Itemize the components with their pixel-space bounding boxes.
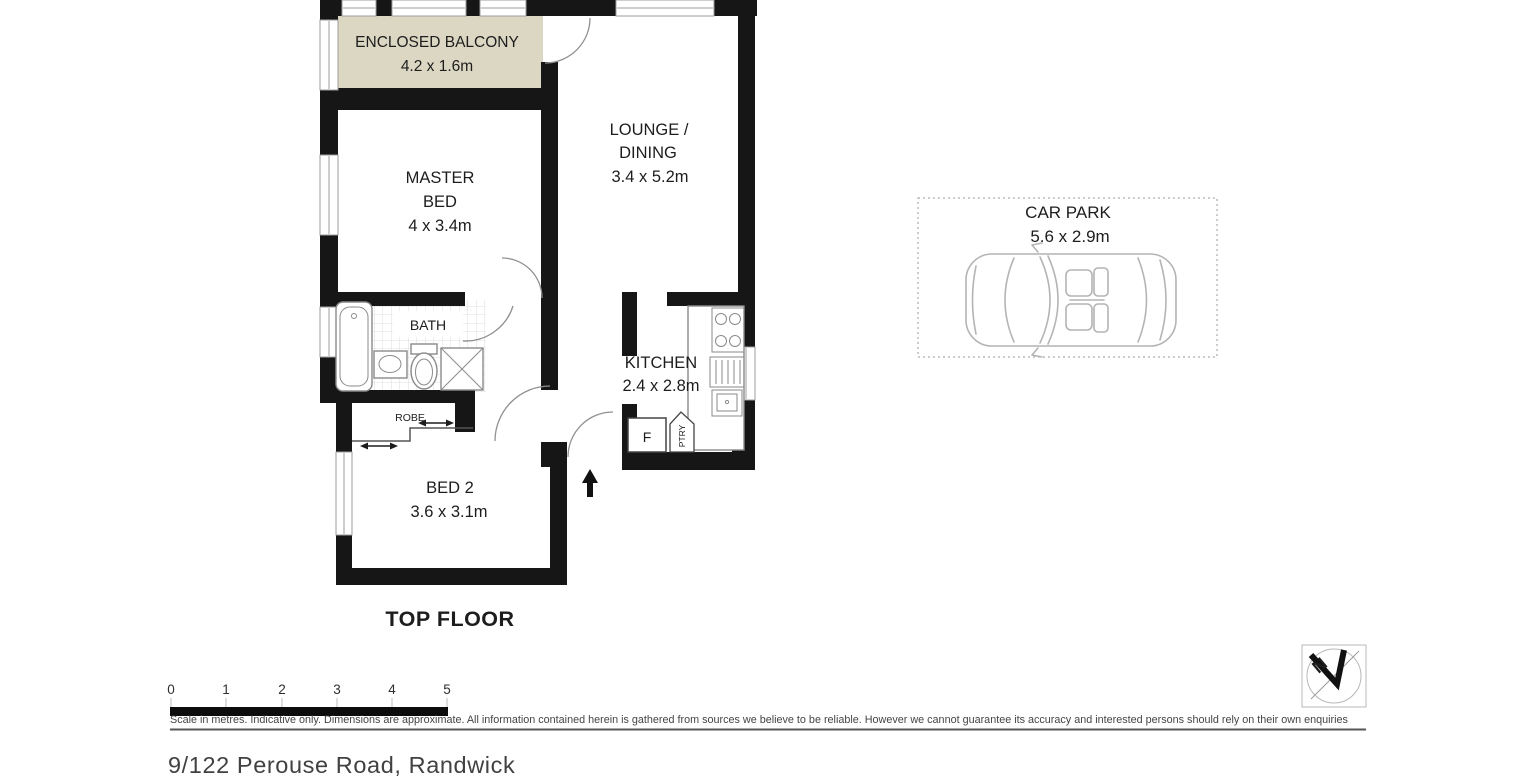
scale-tick-5: 5: [443, 682, 451, 697]
scale-bar: 0 1 2 3 4 5: [167, 682, 451, 716]
car-park-title: CAR PARK: [1025, 203, 1111, 222]
vanity-sink-icon: [374, 351, 407, 378]
bed2-door-arc: [495, 386, 550, 441]
kitchen-name: KITCHEN: [625, 354, 697, 372]
car-park: CAR PARK 5.6 x 2.9m: [918, 198, 1217, 357]
shower-icon: [441, 348, 483, 390]
scale-tick-3: 3: [333, 682, 341, 697]
master-bed-dims: 4 x 3.4m: [408, 217, 471, 235]
kitchen-dims: 2.4 x 2.8m: [622, 377, 699, 395]
level-label: TOP FLOOR: [385, 607, 514, 631]
disclaimer-text: Scale in metres. Indicative only. Dimens…: [170, 714, 1348, 726]
master-door-arc: [502, 258, 542, 298]
lounge-name-1: LOUNGE /: [610, 121, 689, 139]
scale-tick-2: 2: [278, 682, 286, 697]
pantry-label: PTRY: [677, 424, 687, 447]
toilet-icon: [411, 344, 437, 389]
balcony-floor: [338, 16, 543, 88]
master-bed-name-1: MASTER: [406, 169, 475, 187]
balcony-name: ENCLOSED BALCONY: [355, 34, 519, 51]
floor-plan-page: CAR PARK 5.6 x 2.9m ENCLOSED BALCONY 4.2…: [0, 0, 1534, 780]
balcony-dims: 4.2 x 1.6m: [401, 58, 473, 75]
lounge-name-2: DINING: [619, 144, 677, 162]
entry-arrow-icon: [582, 469, 598, 497]
balcony-door-arc: [545, 18, 590, 63]
bathtub-icon: [336, 302, 372, 391]
bed2-dims: 3.6 x 3.1m: [410, 503, 487, 521]
lounge-dims: 3.4 x 5.2m: [611, 168, 688, 186]
scale-tick-0: 0: [167, 682, 175, 697]
scale-tick-1: 1: [222, 682, 230, 697]
scale-tick-lines: [171, 698, 447, 707]
car-park-dims: 5.6 x 2.9m: [1030, 227, 1109, 246]
master-bed-name-2: BED: [423, 193, 457, 211]
address-text: 9/122 Perouse Road, Randwick: [168, 752, 515, 778]
robe-fixture: [352, 420, 473, 450]
robe-name: ROBE: [395, 412, 425, 424]
entry-door-arc: [568, 412, 613, 457]
car-icon: [966, 243, 1176, 357]
fridge-label: F: [643, 429, 652, 445]
bed2-name: BED 2: [426, 479, 474, 497]
sliding-door-arrow-icon: [360, 443, 398, 450]
floor-plan-svg: CAR PARK 5.6 x 2.9m ENCLOSED BALCONY 4.2…: [0, 0, 1534, 780]
bath-name: BATH: [410, 317, 446, 333]
scale-tick-4: 4: [388, 682, 396, 697]
north-compass-icon: N: [1302, 645, 1366, 707]
